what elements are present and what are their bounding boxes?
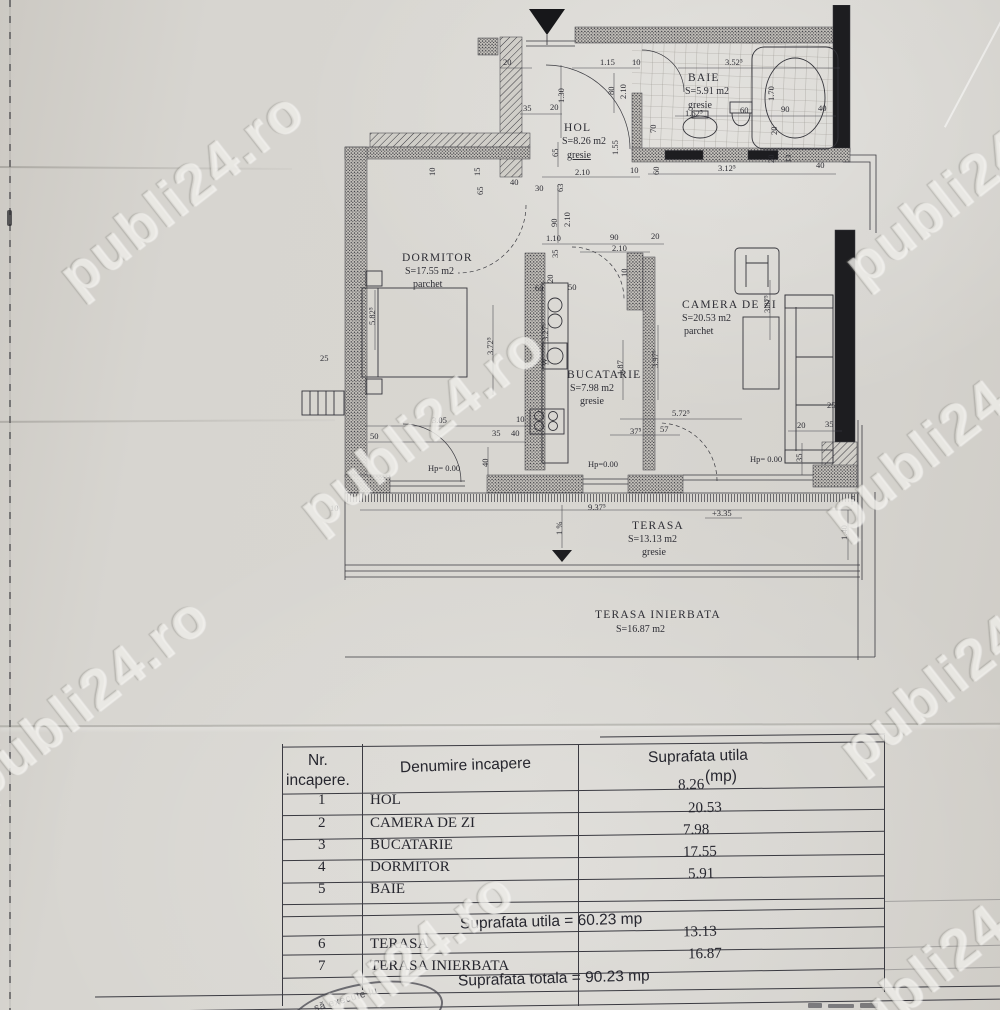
dimension-label: 1.40 (839, 525, 849, 540)
table-row-name: BUCATARIE (370, 837, 453, 854)
illegible-text-fragment (828, 1004, 854, 1008)
dimension-label: 3.12⁵ (718, 163, 736, 173)
table-row-nr: 6 (318, 936, 326, 953)
room-label-baie: BAIE (688, 72, 720, 84)
dimension-label: 10 (632, 57, 641, 67)
scanned-floor-plan-photo: HOL S=8.26 m2 gresie BAIE S=5.91 m2 gres… (0, 0, 1000, 1010)
svg-text:gresie: gresie (642, 547, 666, 558)
table-row-nr: 1 (318, 792, 326, 809)
dimension-label: 20 (545, 275, 555, 284)
table-row-name: BAIE (370, 881, 405, 898)
dimension-label: 10 (330, 503, 339, 513)
dimension-label: 57 (660, 424, 669, 434)
table-row-name: HOL (370, 792, 401, 809)
table-row-name: CAMERA DE ZI (370, 815, 475, 832)
watermark-text: publi24.ro (46, 77, 317, 309)
sofa (785, 295, 833, 463)
svg-text:S=20.53 m2: S=20.53 m2 (682, 313, 731, 324)
svg-text:gresie: gresie (567, 150, 591, 161)
dimension-label: 65 (475, 187, 485, 196)
terrace-wall-hatch (345, 494, 860, 502)
table-row-value: 13.13 (683, 924, 717, 942)
dimension-label: Hp= 0.00 (428, 463, 460, 473)
table-row-value: 16.87 (688, 946, 722, 964)
dimension-label: 15 (472, 168, 482, 177)
entrance-arrow-icon (529, 9, 565, 45)
dimension-label: 20 (769, 127, 779, 136)
table-row-value: 17.55 (683, 844, 717, 862)
dimension-label: 20 (766, 155, 776, 164)
dimension-label: 2.10 (612, 243, 627, 253)
dimension-label: 3.05 (432, 415, 447, 425)
table-row-value: 5.91 (688, 866, 715, 884)
dimension-label: 2.10 (575, 167, 590, 177)
dimension-label: 50 (370, 431, 379, 441)
table-row-name: TERASA (370, 936, 428, 953)
table-row-value: 7.98 (683, 822, 710, 840)
dimension-label: 35 (794, 454, 804, 463)
dimension-label: 13 (783, 155, 793, 164)
dimension-label: 1.55 (610, 140, 620, 155)
illegible-text-fragment (860, 1003, 878, 1008)
svg-text:gresie: gresie (580, 396, 604, 407)
table-header-suprafata: Suprafata utila (648, 747, 748, 768)
svg-text:S=5.91 m2: S=5.91 m2 (685, 86, 729, 97)
svg-text:parchet: parchet (684, 326, 714, 337)
room-label-hol: HOL (564, 122, 591, 134)
dimension-label: 63 (555, 184, 565, 193)
svg-text:S=17.55 m2: S=17.55 m2 (405, 266, 454, 277)
dimension-label: 3.87⁵ (762, 295, 772, 313)
table-header-denumire: Denumire incapere (400, 755, 532, 778)
dimension-label: 10 (630, 165, 639, 175)
dimension-label: 1.30 (556, 88, 566, 103)
dimension-label: 5 (851, 494, 855, 504)
dimension-label: 1.10 (546, 233, 561, 243)
dimension-label: 60 (740, 105, 749, 115)
dimension-label: 20 (651, 231, 660, 241)
dimension-label: 35 (492, 428, 501, 438)
paper-crease (0, 166, 292, 170)
dimension-label: +3.35 (712, 508, 732, 518)
slope-arrow-icon (552, 550, 572, 562)
table-row-nr: 4 (318, 859, 326, 876)
svg-text:S=16.87 m2: S=16.87 m2 (616, 624, 665, 635)
dimension-label: W (539, 358, 549, 366)
armchair (735, 248, 779, 294)
dimension-label: 20 (797, 420, 806, 430)
dimension-label: 5.72⁵ (672, 408, 690, 418)
dimension-label: 90 (610, 232, 619, 242)
dimension-label: Hp=0.00 (588, 459, 618, 469)
table-row-nr: 2 (318, 815, 326, 832)
table-header-nr: Nr. (308, 752, 328, 770)
paper-crease (0, 723, 1000, 728)
dimension-label: 2.10 (562, 212, 572, 227)
dimension-label: 1.70 (766, 86, 776, 101)
table-row-nr: 3 (318, 837, 326, 854)
room-label-dormitor: DORMITOR (402, 252, 473, 264)
dimension-label: 10 (619, 269, 629, 278)
dimension-label: 50 (568, 282, 577, 292)
dimension-label: 40 (816, 160, 825, 170)
table-header-incapere: incapere. (286, 772, 350, 790)
stamp-text: să execute lu (313, 985, 379, 1010)
dimension-label: 60 (535, 283, 544, 293)
svg-text:S=13.13 m2: S=13.13 m2 (628, 534, 677, 545)
table-row-value: 20.53 (688, 800, 722, 818)
dimension-label: 10 (427, 168, 437, 177)
dimension-label: 25 (827, 400, 836, 410)
table-row-nr: 7 (318, 958, 326, 975)
dimension-label: 60 (651, 167, 661, 176)
dimension-label: 3.97⁵ (650, 350, 660, 368)
dimension-label: 3.27⁵ (540, 323, 550, 341)
room-label-terasa-inierbata: TERASA INIERBATA (595, 609, 721, 621)
dimension-label: 20 (503, 57, 512, 67)
table-row-nr: 5 (318, 881, 326, 898)
dimension-label: 3.72⁵ (485, 337, 495, 355)
dimension-label: 70 (648, 125, 658, 134)
dimension-label: Hp= 0.00 (750, 454, 782, 464)
dimension-label: 1.62⁵ (685, 108, 703, 118)
dimension-label: 37⁵ (630, 426, 642, 436)
table-row-name: DORMITOR (370, 859, 450, 876)
svg-text:S=8.26 m2: S=8.26 m2 (562, 136, 606, 147)
paper-fold-line (9, 0, 11, 1010)
dimension-label: 35 (550, 250, 560, 259)
dimension-label: 35 (523, 103, 532, 113)
watermark-text: publi24.ro (0, 582, 222, 814)
dimension-label: 9.37⁵ (588, 502, 606, 512)
dimension-label: 40 (510, 177, 519, 187)
svg-text:parchet: parchet (413, 279, 443, 290)
radiator (302, 391, 344, 415)
dimension-label: 3.52⁵ (725, 57, 743, 67)
dimension-label: 40 (480, 459, 490, 468)
paper-fold-mark (7, 210, 12, 226)
svg-text:S=7.98 m2: S=7.98 m2 (570, 383, 614, 394)
dimension-label: 65 (550, 149, 560, 158)
dimension-label: 90 (781, 104, 790, 114)
dimension-label: 40 (511, 428, 520, 438)
dimension-label: 1.15 (600, 57, 615, 67)
floor-plan-drawing: HOL S=8.26 m2 gresie BAIE S=5.91 m2 gres… (280, 5, 880, 673)
room-label-terasa: TERASA (632, 520, 684, 532)
dimension-label: 30 (535, 183, 544, 193)
dimension-label: 80 (606, 87, 616, 96)
dimension-label: 90 (549, 219, 559, 228)
dimension-label: 10 (516, 414, 525, 424)
dimension-label: 2.10 (618, 84, 628, 99)
illegible-text-fragment (808, 1003, 822, 1008)
table-header-mp: (mp) (705, 768, 737, 786)
room-label-bucatarie: BUCATARIE (567, 369, 641, 381)
dimension-label: 1.87 (615, 360, 625, 375)
dimension-label: 5.82⁵ (367, 307, 377, 325)
paper-crease (944, 0, 1000, 128)
dimension-label: 35 (825, 419, 834, 429)
dimension-label: 1 % (554, 522, 564, 535)
dimension-label: 25 (320, 353, 329, 363)
coffee-table (743, 317, 779, 389)
dimension-label: 40 (818, 103, 827, 113)
table-row-value: 8.26 (678, 777, 705, 795)
